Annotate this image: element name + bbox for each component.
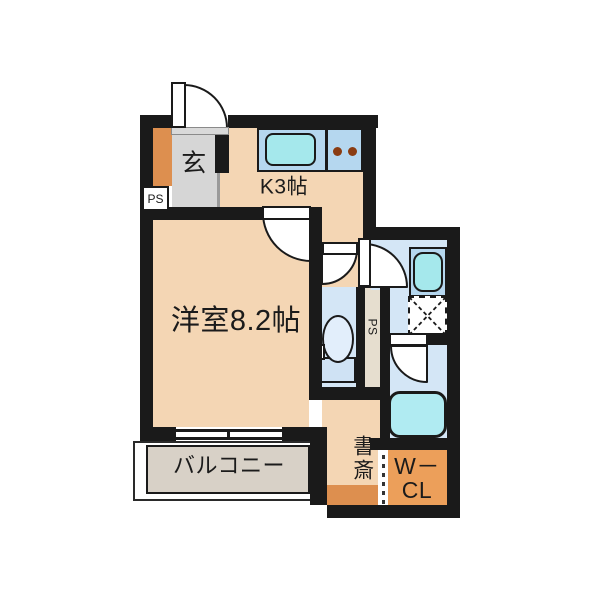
toilet-door-leaf (322, 242, 358, 255)
kitchen-door-leaf (262, 206, 311, 220)
pipe-space-side-label: PS (365, 318, 378, 335)
study-label: 書斎 (353, 435, 376, 482)
washbasin-icon (413, 252, 443, 292)
pipe-space-entrance-label: PS (147, 192, 163, 206)
floor-plan: PS 玄 K3帖 洋室8.2帖 バルコニー 書斎 W－ CL PS (0, 0, 600, 600)
wall-mainroom-bottom-right (282, 427, 310, 441)
wall-study-left (310, 427, 327, 505)
balcony-label: バルコニー (173, 454, 285, 478)
wall-left (140, 115, 153, 441)
bathtub-icon (388, 391, 447, 438)
wall-toilet-bottom (309, 387, 390, 400)
window-center-tick (227, 429, 230, 440)
entrance-threshold (171, 127, 229, 135)
wall-right (447, 227, 460, 518)
washroom-door-leaf (358, 238, 371, 287)
wall-bottom (327, 505, 460, 518)
main-room-label: 洋室8.2帖 (171, 306, 301, 338)
walk-in-closet-label: W－ CL (394, 454, 440, 502)
walk-in-closet-label-line2: CL (394, 478, 440, 502)
pipe-space-side-strip (365, 287, 380, 387)
study-storage (327, 485, 380, 505)
genkan-label: 玄 (181, 150, 207, 178)
pipe-space-entrance: PS (142, 186, 169, 211)
washing-machine-space (408, 296, 447, 336)
wall-toilet-right (356, 287, 365, 387)
wall-bath-left-column (380, 287, 390, 450)
study-passage-floor (322, 400, 380, 427)
toilet-bowl-icon (322, 315, 354, 363)
wall-kitchen-right (363, 115, 376, 240)
entrance-door-arc (184, 85, 227, 128)
kitchen-label: K3帖 (260, 175, 308, 198)
wall-mainroom-bottom-left (140, 427, 176, 441)
wall-top-right (228, 115, 378, 128)
kitchen-sink (265, 133, 316, 166)
burner-icon (333, 147, 342, 156)
bathroom-door-leaf (389, 333, 428, 346)
wall-bath-bottom (370, 438, 460, 450)
counter-divider (325, 128, 328, 172)
closet-folding-door (378, 450, 388, 505)
wall-corridor (309, 207, 322, 400)
wall-washroom-top (363, 227, 460, 240)
entrance-door-leaf (171, 82, 186, 128)
entry-cabinet (153, 128, 172, 186)
walk-in-closet-label-line1: W－ (394, 454, 440, 478)
burner-icon (348, 147, 357, 156)
